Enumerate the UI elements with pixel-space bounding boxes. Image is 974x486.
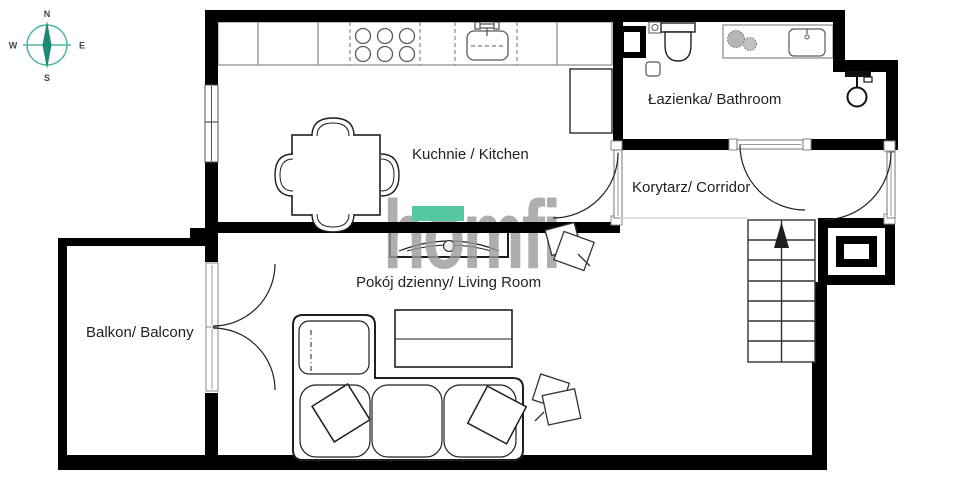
door-swing-arc — [213, 328, 275, 390]
coffee-table — [395, 310, 512, 367]
kitchen-window — [205, 85, 218, 162]
bathroom-sink-icon — [789, 29, 825, 56]
compass-south-label: S — [44, 73, 50, 83]
shower-icon — [845, 71, 872, 107]
entrance-door — [823, 141, 895, 224]
vent-shaft — [618, 22, 661, 76]
floor-plan-walls-layer: N E S W — [0, 0, 974, 486]
bathroom-plant-icon — [728, 31, 757, 51]
compass-east-label: E — [79, 41, 85, 51]
room-label-kitchen: Kuchnie / Kitchen — [412, 146, 529, 163]
stairs — [748, 220, 815, 362]
bathroom-door — [729, 139, 811, 210]
door-swing-arc — [213, 264, 275, 326]
floor-plan: homfi — [0, 0, 974, 486]
compass-needle-icon — [43, 21, 52, 69]
balcony-door — [206, 263, 275, 391]
room-label-bathroom: Łazienka/ Bathroom — [648, 91, 781, 108]
room-label-balcony: Balkon/ Balcony — [86, 324, 194, 341]
room-label-living-room: Pokój dzienny/ Living Room — [356, 274, 541, 291]
compass-north-label: N — [44, 9, 51, 19]
door-swing-arc — [823, 152, 891, 220]
elevator-shaft — [818, 218, 895, 285]
door-swing-arc — [553, 153, 618, 218]
room-label-corridor: Korytarz/ Corridor — [632, 179, 750, 196]
dining-table — [292, 135, 380, 215]
toilet-icon — [661, 23, 695, 61]
compass-west-label: W — [9, 41, 18, 51]
door-swing-arc — [740, 145, 805, 210]
kitchen-door — [553, 141, 622, 225]
compass-rose: N E S W — [9, 9, 85, 83]
plant-icon — [532, 374, 580, 425]
